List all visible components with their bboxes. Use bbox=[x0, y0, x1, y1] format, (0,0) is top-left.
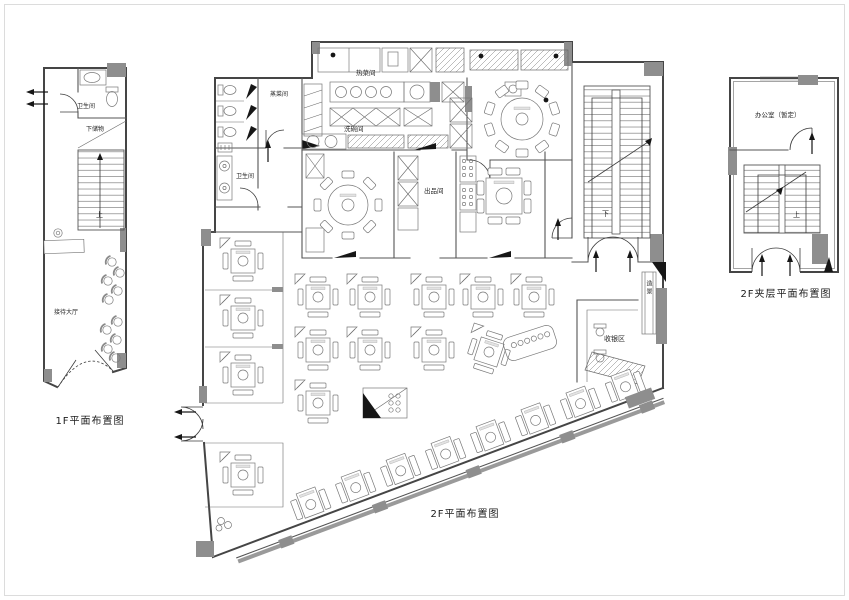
mezz-room-label-office: 办公室（暂定） bbox=[755, 112, 801, 119]
f2-room-label-scenery: 造景 bbox=[645, 280, 651, 296]
plan-mezzanine bbox=[728, 75, 838, 276]
f2-room-label-dishwash: 洗碗间 bbox=[344, 126, 364, 133]
window-booths bbox=[223, 362, 665, 564]
private-room-a bbox=[306, 154, 382, 258]
f1-room-label-reception: 接待大厅 bbox=[54, 310, 78, 316]
plan-1f bbox=[26, 63, 126, 387]
bathroom-2f bbox=[217, 156, 258, 206]
booth-column bbox=[205, 232, 283, 531]
stairs-2f bbox=[584, 86, 652, 238]
mezz-stair-direction: 上 bbox=[793, 212, 800, 219]
private-room-b bbox=[460, 156, 531, 258]
drawing-sheet: 卫生间 下储物 上 接待大厅 1F平面布置图 蒸菜间 热菜间 洗碗间 卫生间 出… bbox=[0, 0, 849, 600]
dining-tables bbox=[295, 274, 554, 423]
reception-counter bbox=[44, 229, 84, 254]
f2-room-label-steam: 蒸菜间 bbox=[270, 92, 288, 98]
mezz-plan-title: 2F夹层平面布置图 bbox=[736, 290, 836, 300]
f2-room-label-bathroom: 卫生间 bbox=[236, 174, 254, 180]
f1-room-label-bathroom: 卫生间 bbox=[77, 104, 95, 110]
f1-stair-direction: 上 bbox=[96, 212, 103, 219]
f2-room-label-expo: 出品间 bbox=[424, 188, 444, 195]
waiter-station-trapezoid bbox=[502, 324, 559, 363]
toilet-stalls-2f bbox=[216, 84, 257, 152]
f2-room-label-cashier: 收银区 bbox=[604, 336, 625, 343]
lounge-chairs bbox=[101, 256, 124, 362]
f2-plan-title: 2F平面布置图 bbox=[405, 510, 525, 520]
f1-room-label-storage: 下储物 bbox=[86, 127, 104, 133]
f1-plan-title: 1F平面布置图 bbox=[50, 417, 130, 427]
plan-2f bbox=[174, 42, 667, 564]
stairs-mezzanine bbox=[744, 165, 820, 233]
waiter-station bbox=[363, 388, 407, 418]
entry-door-1f bbox=[58, 350, 113, 387]
f2-stair-direction: 下 bbox=[602, 211, 609, 218]
f2-room-label-hot-kitchen: 热菜间 bbox=[356, 70, 376, 77]
